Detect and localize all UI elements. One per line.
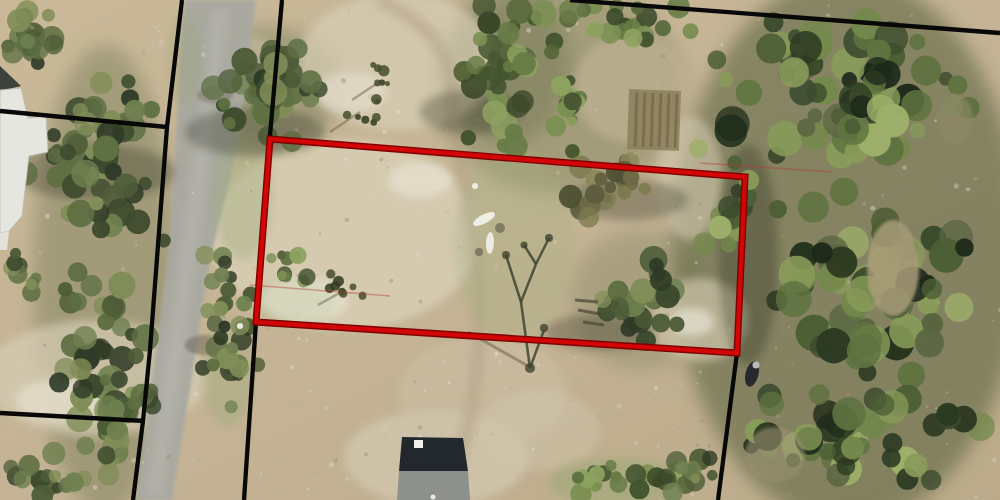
map-canvas [0, 0, 1000, 500]
garden-plot [627, 89, 681, 151]
house-roof [397, 437, 470, 500]
aerial-parcel-map[interactable] [0, 0, 1000, 500]
